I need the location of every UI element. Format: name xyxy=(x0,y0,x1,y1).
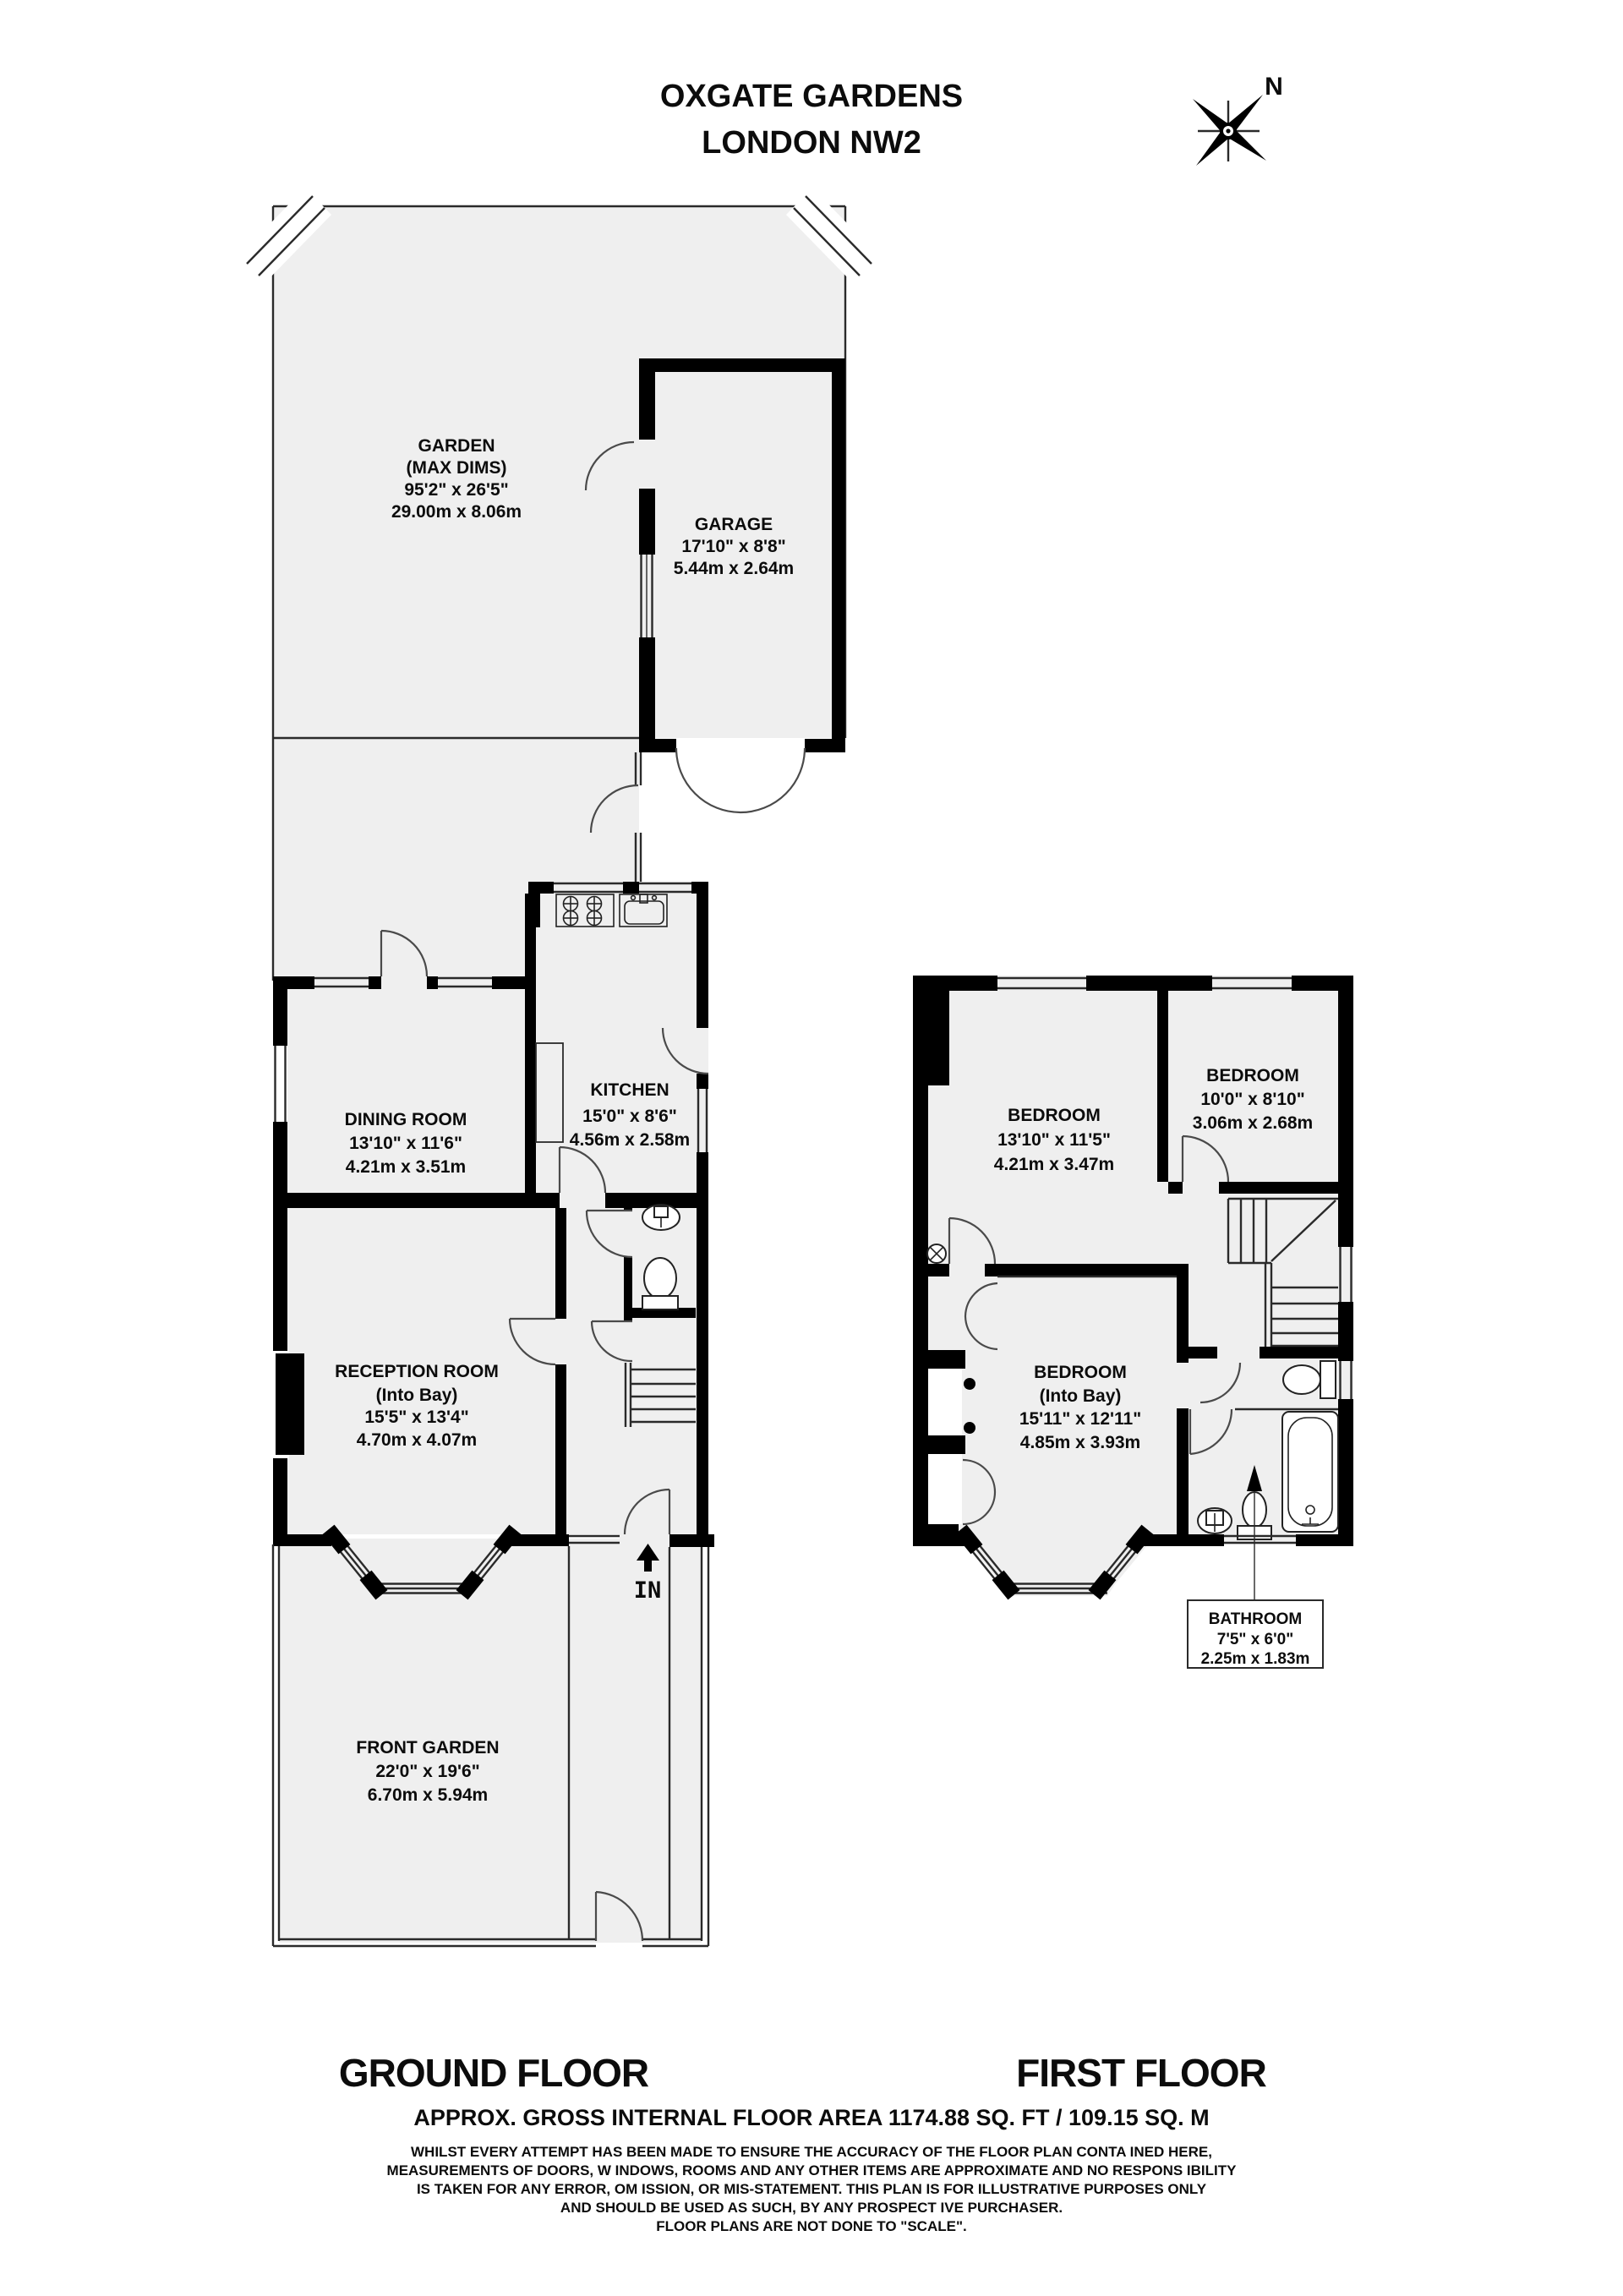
kitchen-chimney-recess xyxy=(536,1043,563,1142)
bedroom2-dims-metric: 3.06m x 2.68m xyxy=(1193,1113,1313,1133)
reception-intobay: (Into Bay) xyxy=(376,1386,458,1405)
bedroom3-dims-metric: 4.85m x 3.93m xyxy=(1020,1433,1140,1452)
page-title: OXGATE GARDENS LONDON NW2 xyxy=(660,79,963,161)
dining-label: DINING ROOM xyxy=(345,1110,467,1129)
kitchen-dims-metric: 4.56m x 2.58m xyxy=(570,1130,690,1150)
disclaimer-line5: FLOOR PLANS ARE NOT DONE TO "SCALE". xyxy=(656,2218,966,2234)
first-floor-plan: BATHROOM 7'5" x 6'0" 2.25m x 1.83m BEDRO… xyxy=(913,976,1353,1668)
alcove-dot-bottom xyxy=(964,1422,975,1434)
front-garden-label: FRONT GARDEN xyxy=(356,1738,499,1758)
garden-dims-metric: 29.00m x 8.06m xyxy=(391,502,522,522)
bedroom2-dims-imperial: 10'0" x 8'10" xyxy=(1200,1090,1304,1109)
wc-sink-icon xyxy=(642,1205,680,1230)
north-label: N xyxy=(1265,73,1283,101)
wc-toilet-icon xyxy=(642,1258,678,1309)
garden-dims-imperial: 95'2" x 26'5" xyxy=(404,480,508,500)
front-garden-dims-metric: 6.70m x 5.94m xyxy=(368,1785,488,1805)
bedroom3-label: BEDROOM xyxy=(1034,1363,1127,1382)
bedroom3-intobay: (Into Bay) xyxy=(1040,1386,1122,1406)
kitchen-dims-imperial: 15'0" x 8'6" xyxy=(582,1107,677,1126)
bedroom1-dims-imperial: 13'10" x 11'5" xyxy=(997,1130,1111,1150)
bedroom2-label: BEDROOM xyxy=(1206,1066,1299,1085)
house-ground-area xyxy=(287,976,708,1534)
bedroom1-label: BEDROOM xyxy=(1008,1106,1101,1125)
alcove-dot-top xyxy=(964,1378,975,1390)
garage-dims-imperial: 17'10" x 8'8" xyxy=(681,537,785,556)
garage-rear-door-arc-right xyxy=(740,748,805,812)
title-line1: OXGATE GARDENS xyxy=(660,79,963,114)
ground-floor-label: GROUND FLOOR xyxy=(339,2051,649,2095)
garage-label: GARAGE xyxy=(695,515,773,534)
title-line2: LONDON NW2 xyxy=(702,125,921,161)
kitchen-label: KITCHEN xyxy=(590,1080,669,1100)
bedroom1-dims-metric: 4.21m x 3.47m xyxy=(994,1155,1114,1174)
garden-area xyxy=(273,206,845,738)
dining-dims-imperial: 13'10" x 11'6" xyxy=(349,1134,462,1153)
reception-dims-imperial: 15'5" x 13'4" xyxy=(364,1408,468,1427)
reception-chimney xyxy=(271,1351,304,1458)
disclaimer-line4: AND SHOULD BE USED AS SUCH, BY ANY PROSP… xyxy=(560,2200,1063,2216)
garden-maxdims: (MAX DIMS) xyxy=(407,458,507,478)
footer: GROUND FLOOR FIRST FLOOR APPROX. GROSS I… xyxy=(339,2051,1267,2234)
disclaimer-line3: IS TAKEN FOR ANY ERROR, OM ISSION, OR MI… xyxy=(417,2181,1207,2197)
reception-label: RECEPTION ROOM xyxy=(335,1362,499,1381)
garage-rear-door-arc-left xyxy=(676,748,740,812)
floorplan-page: OXGATE GARDENS LONDON NW2 N xyxy=(0,0,1623,2296)
bedroom3-dims-imperial: 15'11" x 12'11" xyxy=(1019,1409,1141,1429)
bathroom-label: BATHROOM xyxy=(1209,1610,1302,1628)
floor-area-summary: APPROX. GROSS INTERNAL FLOOR AREA 1174.8… xyxy=(413,2105,1209,2130)
light-symbol-icon xyxy=(927,1244,946,1263)
first-floor-label: FIRST FLOOR xyxy=(1016,2051,1266,2095)
disclaimer-line2: MEASUREMENTS OF DOORS, W INDOWS, ROOMS A… xyxy=(387,2162,1238,2178)
bathroom-dims-metric: 2.25m x 1.83m xyxy=(1201,1650,1310,1668)
garden-label: GARDEN xyxy=(418,436,495,456)
bathroom-dims-imperial: 7'5" x 6'0" xyxy=(1217,1631,1293,1648)
corner-sink-icon xyxy=(1198,1508,1232,1533)
reception-dims-metric: 4.70m x 4.07m xyxy=(357,1430,477,1450)
dining-dims-metric: 4.21m x 3.51m xyxy=(346,1157,466,1177)
entrance-in-label: IN xyxy=(634,1577,662,1604)
ground-floor-plan: IN GARDEN (MAX DIMS) 95'2" x 26'5" 29.00… xyxy=(239,188,878,1946)
garage-dims-metric: 5.44m x 2.64m xyxy=(674,559,794,578)
disclaimer-line1: WHILST EVERY ATTEMPT HAS BEEN MADE TO EN… xyxy=(411,2144,1212,2160)
bathtub-icon xyxy=(1282,1412,1338,1532)
floorplan-drawing: OXGATE GARDENS LONDON NW2 N xyxy=(0,0,1623,2296)
front-garden-dims-imperial: 22'0" x 19'6" xyxy=(375,1762,479,1781)
north-compass-icon: N xyxy=(1193,73,1283,166)
